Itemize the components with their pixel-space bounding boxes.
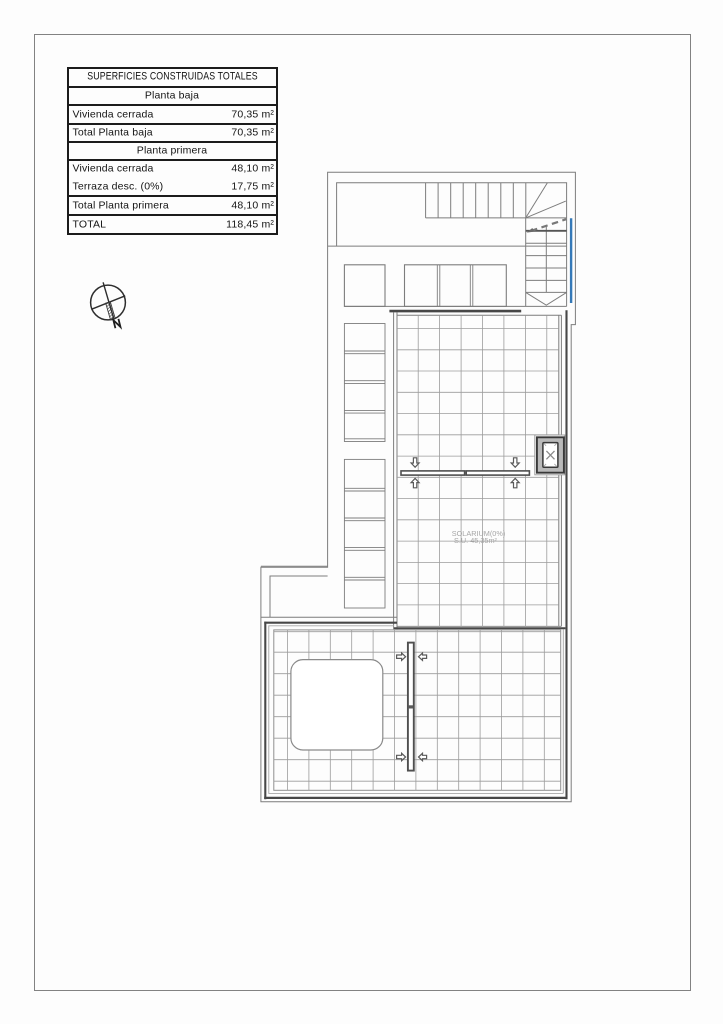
svg-text:S.U. 45,35m²: S.U. 45,35m² xyxy=(454,536,498,545)
